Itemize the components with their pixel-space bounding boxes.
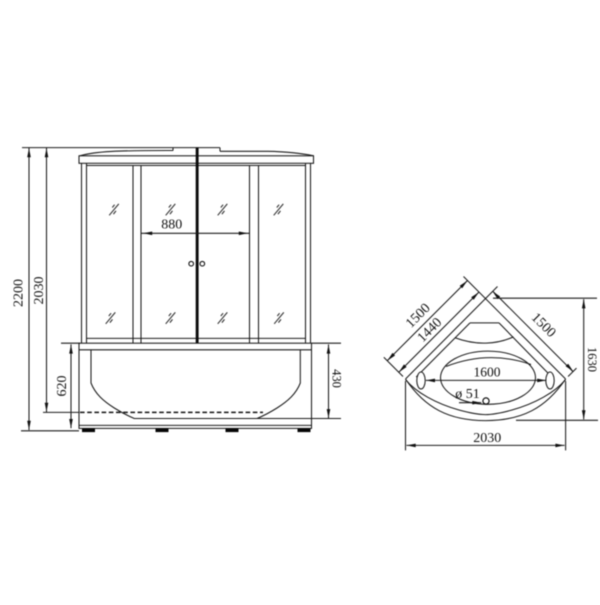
svg-text:2030: 2030 [473,431,501,446]
svg-text:1600: 1600 [474,364,501,379]
svg-text:1500: 1500 [528,310,558,340]
svg-text:2030: 2030 [32,277,47,305]
svg-text:2200: 2200 [12,279,27,307]
svg-text:430: 430 [330,369,344,388]
svg-text:880: 880 [161,218,182,233]
svg-text:1630: 1630 [585,347,599,372]
svg-text:620: 620 [55,376,70,397]
svg-text:ø 51: ø 51 [455,387,480,402]
